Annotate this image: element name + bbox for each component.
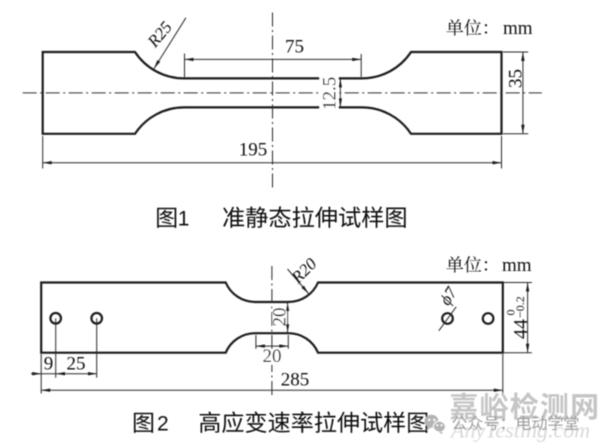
- svg-text:75: 75: [285, 37, 304, 58]
- svg-text:35: 35: [506, 69, 527, 88]
- svg-text:1: 1: [178, 208, 190, 231]
- svg-text:25: 25: [67, 354, 86, 375]
- svg-text:285: 285: [281, 370, 310, 391]
- svg-text:44: 44: [510, 319, 532, 339]
- svg-text:195: 195: [239, 140, 268, 161]
- svg-text:mm: mm: [502, 255, 532, 276]
- svg-text:12.5: 12.5: [320, 77, 341, 110]
- svg-text:−0.2: −0.2: [513, 296, 527, 318]
- svg-text:mm: mm: [503, 18, 533, 39]
- svg-text:9: 9: [44, 354, 54, 375]
- svg-text:2: 2: [157, 413, 169, 436]
- svg-text:20: 20: [269, 308, 290, 327]
- svg-text:20: 20: [263, 346, 282, 367]
